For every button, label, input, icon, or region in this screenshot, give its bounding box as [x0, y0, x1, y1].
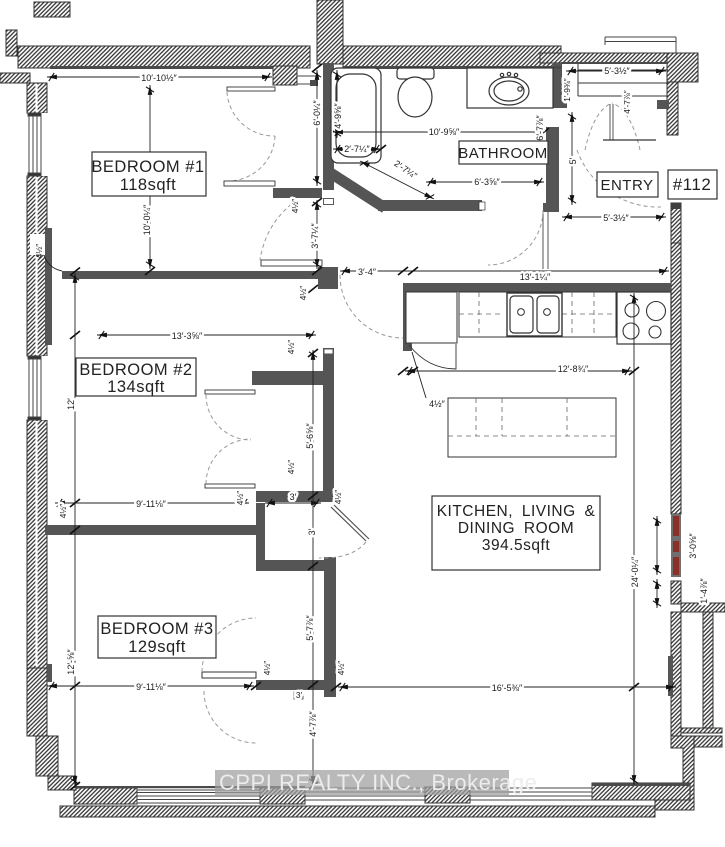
svg-text:4½″: 4½″	[262, 661, 272, 676]
svg-text:BATHROOM: BATHROOM	[458, 145, 548, 162]
svg-text:10′-0¼″: 10′-0¼″	[142, 204, 152, 235]
svg-text:13′-3⅝″: 13′-3⅝″	[172, 331, 203, 341]
svg-text:10′-9⅝″: 10′-9⅝″	[429, 127, 460, 137]
svg-text:4½″: 4½″	[333, 490, 343, 505]
svg-text:#112: #112	[673, 175, 712, 194]
svg-text:394.5sqft: 394.5sqft	[482, 537, 550, 554]
svg-text:4½″: 4½″	[290, 199, 300, 214]
svg-text:6′-0¼″: 6′-0¼″	[312, 99, 322, 125]
svg-text:4½″: 4½″	[286, 460, 296, 475]
svg-text:16′-5⅜″: 16′-5⅜″	[492, 683, 523, 693]
svg-text:10′-10½″: 10′-10½″	[141, 73, 177, 83]
svg-text:129sqft: 129sqft	[128, 638, 186, 656]
svg-text:4′-7⅞″: 4′-7⅞″	[308, 710, 318, 736]
svg-text:3′-7¼″: 3′-7¼″	[310, 222, 320, 248]
svg-text:3′-0⅝″: 3′-0⅝″	[688, 532, 698, 558]
svg-text:ENTRY: ENTRY	[600, 177, 653, 194]
svg-text:9′-11⅛″: 9′-11⅛″	[136, 682, 167, 692]
svg-text:4½″: 4½″	[286, 340, 296, 355]
svg-text:118sqft: 118sqft	[120, 176, 176, 194]
svg-text:3′-4″: 3′-4″	[358, 267, 377, 277]
svg-text:12′-8¾″: 12′-8¾″	[558, 364, 589, 374]
svg-text:13′-1¼″: 13′-1¼″	[520, 272, 551, 282]
svg-text:5′-7⅞″: 5′-7⅞″	[305, 614, 315, 640]
svg-text:5′-6⅝″: 5′-6⅝″	[305, 422, 315, 448]
svg-text:3′: 3′	[290, 492, 297, 502]
svg-text:BEDROOM #2: BEDROOM #2	[79, 361, 192, 379]
svg-text:4½″: 4½″	[336, 661, 346, 676]
svg-text:6′-3⅝″: 6′-3⅝″	[474, 177, 500, 187]
svg-text:5′-3½″: 5′-3½″	[604, 66, 630, 76]
svg-text:BEDROOM #1: BEDROOM #1	[91, 158, 204, 176]
svg-text:DINING ROOM: DINING ROOM	[458, 520, 574, 537]
svg-text:KITCHEN, LIVING &: KITCHEN, LIVING &	[437, 503, 596, 520]
svg-text:12′: 12′	[66, 398, 76, 410]
svg-text:3′: 3′	[296, 690, 303, 700]
svg-text:9′-11⅛″: 9′-11⅛″	[136, 499, 167, 509]
svg-text:3′: 3′	[307, 528, 317, 535]
svg-text:6′-7⅞″: 6′-7⅞″	[535, 114, 545, 140]
svg-text:12′-⅝″: 12′-⅝″	[66, 648, 76, 674]
svg-text:CPPI REALTY INC., Brokerage: CPPI REALTY INC., Brokerage	[219, 770, 537, 795]
svg-text:4½″: 4½″	[58, 504, 68, 519]
svg-text:2′-7¼″: 2′-7¼″	[344, 144, 370, 154]
svg-text:4½″: 4½″	[34, 244, 44, 259]
svg-text:4½″: 4½″	[298, 286, 308, 301]
svg-text:4′-7⅞″: 4′-7⅞″	[622, 90, 632, 113]
svg-text:5′: 5′	[568, 157, 578, 164]
svg-text:24′-0¼″: 24′-0¼″	[630, 556, 640, 587]
svg-text:1′-9¾″: 1′-9¾″	[562, 78, 572, 101]
svg-text:134sqft: 134sqft	[107, 378, 165, 396]
svg-text:4½″: 4½″	[235, 491, 245, 506]
svg-text:4½″: 4½″	[429, 399, 446, 409]
svg-text:4′-9⅝″: 4′-9⅝″	[333, 102, 343, 128]
svg-text:1′-4⅞″: 1′-4⅞″	[699, 577, 709, 603]
svg-text:BEDROOM #3: BEDROOM #3	[100, 620, 213, 638]
svg-text:5′-3½″: 5′-3½″	[603, 213, 629, 223]
